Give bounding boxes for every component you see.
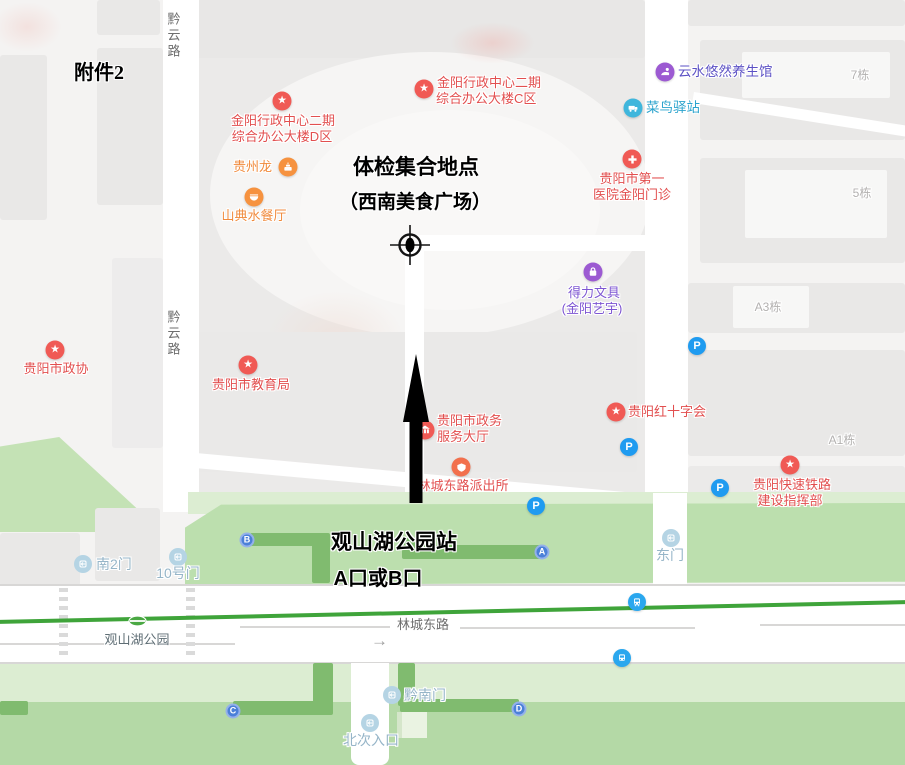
door-icon <box>665 532 677 544</box>
metro-station-icon[interactable] <box>128 614 147 632</box>
city-block <box>688 0 905 26</box>
metro-entrance-d[interactable]: D <box>512 702 527 717</box>
poi-label[interactable]: 贵州龙 <box>233 159 272 175</box>
star-icon: ★ <box>785 459 795 471</box>
parking-icon[interactable]: P <box>620 438 638 456</box>
road-label-qianyun-mid: 黔云路 <box>165 310 181 358</box>
cross-icon <box>626 153 638 165</box>
building-label-a1: A1栋 <box>829 433 856 449</box>
building-label-a3: A3栋 <box>755 300 782 316</box>
door-icon <box>77 558 89 570</box>
crosswalk <box>186 588 195 660</box>
gate-icon[interactable] <box>662 529 680 547</box>
road-label-qianyun-top: 黔云路 <box>165 12 181 60</box>
gate-icon[interactable] <box>361 714 379 732</box>
poi-label[interactable]: (金阳艺宇) <box>562 301 623 317</box>
parking-letter: P <box>693 341 700 352</box>
bus-icon <box>616 652 628 664</box>
poi-star-icon[interactable]: ★ <box>46 341 65 360</box>
metro-entrance-b[interactable]: B <box>240 533 255 548</box>
road-centerline <box>460 627 695 629</box>
poi-star-icon[interactable]: ★ <box>415 80 434 99</box>
road-edge <box>0 584 905 586</box>
poi-label[interactable]: 综合办公大楼D区 <box>232 129 332 145</box>
poi-label[interactable]: 贵阳市政协 <box>23 361 88 377</box>
map-tint <box>450 22 535 64</box>
star-icon: ★ <box>611 406 621 418</box>
road-centerline <box>240 626 390 628</box>
city-block <box>97 0 160 35</box>
parking-icon[interactable]: P <box>527 497 545 515</box>
station-callout-subtitle: A口或B口 <box>334 562 423 591</box>
poi-label[interactable]: 医院金阳门诊 <box>593 187 671 203</box>
poi-label[interactable]: 建设指挥部 <box>757 493 822 509</box>
poi-police-icon[interactable] <box>452 458 471 477</box>
poi-label[interactable]: 贵阳市教育局 <box>212 377 290 393</box>
crosswalk <box>59 588 68 660</box>
parking-letter: P <box>716 483 723 494</box>
poi-post-station-icon[interactable] <box>624 99 643 118</box>
park-structure <box>397 712 427 738</box>
bowl-icon <box>248 191 261 204</box>
poi-star-icon[interactable]: ★ <box>607 403 626 422</box>
poi-star-icon[interactable]: ★ <box>273 92 292 111</box>
map-tint <box>0 2 62 52</box>
metro-station-label[interactable]: 观山湖公园 <box>104 632 169 648</box>
poi-label[interactable]: 贵阳红十字会 <box>628 404 706 420</box>
parking-icon[interactable]: P <box>711 479 729 497</box>
gate-label-qiannanmen[interactable]: 黔南门 <box>404 688 446 704</box>
one-way-arrow: → <box>371 633 388 649</box>
door-icon <box>172 551 184 563</box>
bus-icon <box>631 596 643 608</box>
gate-label-10haomen[interactable]: 10号门 <box>156 566 200 582</box>
poi-wellness-icon[interactable] <box>656 63 675 82</box>
poi-label[interactable]: 林城东路派出所 <box>417 478 508 494</box>
map-canvas[interactable]: 黔云路 黔云路 林城东路 → ★ 金阳行政中心二期 综合办公大楼D区 ★ 金阳行… <box>0 0 905 765</box>
gate-icon[interactable] <box>383 686 401 704</box>
poi-label[interactable]: 菜鸟驿站 <box>646 100 700 116</box>
poi-label[interactable]: 云水悠然养生馆 <box>678 64 773 80</box>
poi-label[interactable]: 金阳行政中心二期 <box>231 113 335 129</box>
poi-label[interactable]: 贵阳市政务 <box>437 413 502 429</box>
poi-store-icon[interactable] <box>584 263 603 282</box>
city-block <box>0 55 47 220</box>
attachment-label: 附件2 <box>74 56 124 85</box>
cake-icon <box>282 161 295 174</box>
metro-entrance-a[interactable]: A <box>535 545 550 560</box>
road-centerline <box>760 624 905 626</box>
gate-icon[interactable] <box>169 548 187 566</box>
star-icon: ★ <box>50 344 60 356</box>
road-edge <box>0 662 905 664</box>
gate-label-beiciruqou[interactable]: 北次入口 <box>343 733 399 749</box>
poi-label[interactable]: 金阳行政中心二期 <box>437 75 541 91</box>
parking-letter: P <box>625 442 632 453</box>
poi-star-icon[interactable]: ★ <box>239 356 258 375</box>
park-path <box>0 701 28 715</box>
door-icon <box>364 717 376 729</box>
gate-label-dongmen[interactable]: 东门 <box>656 548 684 564</box>
poi-restaurant-icon[interactable] <box>279 158 298 177</box>
poi-label[interactable]: 贵阳市第一 <box>599 171 664 187</box>
door-icon <box>386 689 398 701</box>
park-path <box>312 533 330 583</box>
poi-star-icon[interactable]: ★ <box>781 456 800 475</box>
meeting-point-subtitle: （西南美食广场） <box>339 187 491 214</box>
gate-label-nan2men[interactable]: 南2门 <box>96 557 132 573</box>
poi-label[interactable]: 综合办公大楼C区 <box>436 91 536 107</box>
bus-stop-icon[interactable] <box>628 593 646 611</box>
star-icon: ★ <box>419 83 429 95</box>
building <box>745 170 887 238</box>
crosshair-icon <box>387 222 433 273</box>
building-label-7: 7栋 <box>851 68 870 84</box>
gate-icon[interactable] <box>74 555 92 573</box>
metro-entrance-c[interactable]: C <box>226 704 241 719</box>
parking-icon[interactable]: P <box>688 337 706 355</box>
station-callout-title: 观山湖公园站 <box>331 526 457 556</box>
poi-label[interactable]: 得力文具 <box>568 285 620 301</box>
badge-icon <box>455 461 467 473</box>
city-block-a1 <box>688 350 905 456</box>
city-block <box>197 0 645 58</box>
poi-label[interactable]: 贵阳快速铁路 <box>753 477 831 493</box>
route-arrow <box>403 354 429 509</box>
spa-icon <box>659 66 672 79</box>
meeting-point-title: 体检集合地点 <box>353 151 479 181</box>
park-path <box>233 701 333 715</box>
road-qianyun <box>163 0 199 512</box>
road-label-lincheng: 林城东路 <box>397 617 449 633</box>
building-label-5: 5栋 <box>853 186 872 202</box>
city-block <box>0 533 80 586</box>
shopping-bag-icon <box>587 266 600 279</box>
poi-label[interactable]: 山典水餐厅 <box>221 208 286 224</box>
truck-icon <box>627 102 640 115</box>
parking-letter: P <box>532 501 539 512</box>
bus-stop-icon[interactable] <box>613 649 631 667</box>
city-block <box>112 258 163 448</box>
road-plaza-east <box>418 235 650 251</box>
poi-hospital-icon[interactable] <box>623 150 642 169</box>
poi-restaurant-icon[interactable] <box>245 188 264 207</box>
poi-label[interactable]: 服务大厅 <box>437 429 489 445</box>
star-icon: ★ <box>277 95 287 107</box>
star-icon: ★ <box>243 359 253 371</box>
